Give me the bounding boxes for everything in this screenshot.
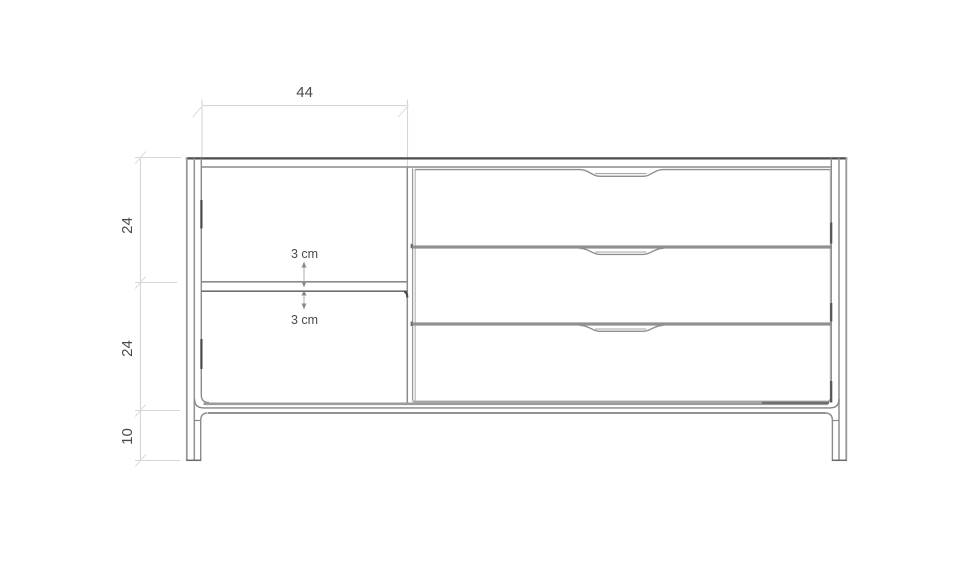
svg-text:24: 24 [119,217,136,234]
svg-text:24: 24 [119,340,136,357]
svg-text:3 cm: 3 cm [291,247,318,261]
svg-text:44: 44 [296,84,313,101]
svg-text:10: 10 [119,428,136,445]
svg-text:3 cm: 3 cm [291,313,318,327]
